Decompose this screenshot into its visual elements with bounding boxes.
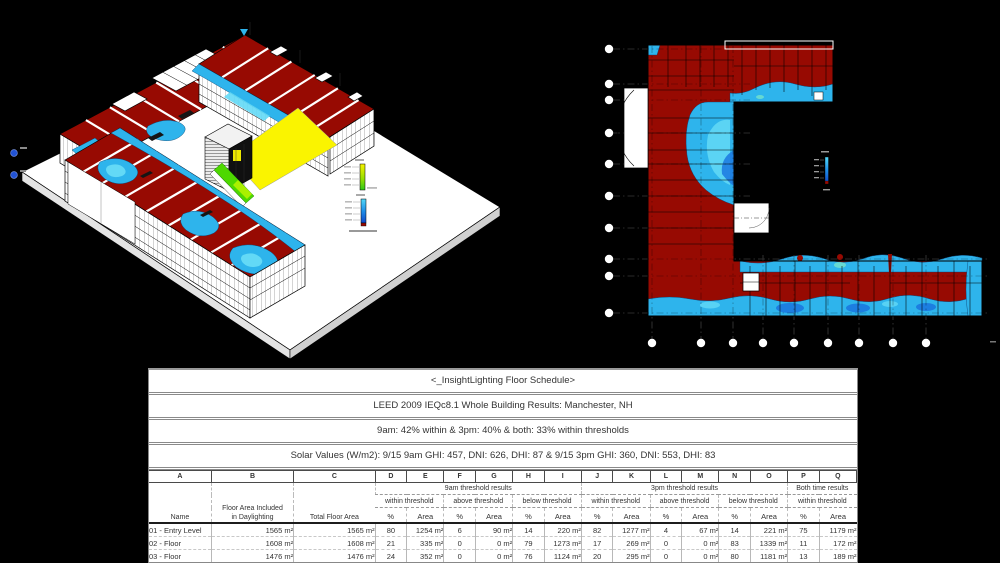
- cell: 1608 m²: [294, 537, 376, 550]
- column-letter: K: [613, 471, 650, 483]
- schedule-title: <_InsightLighting Floor Schedule>: [149, 370, 857, 395]
- header-pct: %: [375, 508, 407, 524]
- schedule-solar-line: Solar Values (W/m2): 9/15 9am GHI: 457, …: [149, 445, 857, 470]
- schedule-summary-line: 9am: 42% within & 3pm: 40% & both: 33% w…: [149, 420, 857, 445]
- header-area: Area: [750, 508, 787, 524]
- cell: 1476 m²: [211, 550, 293, 563]
- cell: 83: [719, 537, 751, 550]
- schedule-grid: A B C D E F G H I J K L M N O P Q Name F…: [149, 470, 857, 562]
- cell: 1273 m²: [544, 537, 581, 550]
- cell: 79: [513, 537, 545, 550]
- header-pct: %: [719, 508, 751, 524]
- column-letter: G: [475, 471, 512, 483]
- column-letter-row: A B C D E F G H I J K L M N O P Q: [149, 471, 857, 483]
- group-9am: 9am threshold results: [375, 483, 581, 495]
- cell: 1254 m²: [407, 523, 444, 537]
- cell: 11: [788, 537, 820, 550]
- subheader-within: within threshold: [581, 495, 650, 508]
- cell: 14: [719, 523, 751, 537]
- cell: 76: [513, 550, 545, 563]
- axis-marker-icon: [11, 172, 18, 179]
- subheader-above: above threshold: [650, 495, 719, 508]
- row-name: 01 - Entry Level: [149, 523, 211, 537]
- cell: 0 m²: [475, 550, 512, 563]
- row-name: 03 - Floor: [149, 550, 211, 563]
- cell: 269 m²: [613, 537, 650, 550]
- cell: 17: [581, 537, 613, 550]
- cell: 67 m²: [682, 523, 719, 537]
- column-letter: E: [407, 471, 444, 483]
- group-both: Both time results: [788, 483, 857, 495]
- cell: 13: [788, 550, 820, 563]
- column-letter: M: [682, 471, 719, 483]
- column-letter: O: [750, 471, 787, 483]
- header-total-floor-area: Total Floor Area: [294, 483, 376, 524]
- cell: 4: [650, 523, 682, 537]
- cell: 0: [650, 537, 682, 550]
- cell: 335 m²: [407, 537, 444, 550]
- cell: 1181 m²: [750, 550, 787, 563]
- group-3pm: 3pm threshold results: [581, 483, 787, 495]
- axon-3d-view[interactable]: [0, 0, 600, 370]
- cell: 1476 m²: [294, 550, 376, 563]
- column-letter: C: [294, 471, 376, 483]
- cell: 1277 m²: [613, 523, 650, 537]
- column-letter: N: [719, 471, 751, 483]
- cell: 352 m²: [407, 550, 444, 563]
- cell: 1339 m²: [750, 537, 787, 550]
- cell: 0: [650, 550, 682, 563]
- cell: 0: [444, 550, 476, 563]
- subheader-within: within threshold: [788, 495, 857, 508]
- cell: 1179 m²: [819, 523, 856, 537]
- header-area: Area: [613, 508, 650, 524]
- subheader-below: below threshold: [513, 495, 582, 508]
- floor-schedule-panel: <_InsightLighting Floor Schedule> LEED 2…: [148, 368, 858, 563]
- cell: 189 m²: [819, 550, 856, 563]
- cell: 1608 m²: [211, 537, 293, 550]
- cell: 0 m²: [475, 537, 512, 550]
- cell: 220 m²: [544, 523, 581, 537]
- cell: 0: [444, 537, 476, 550]
- cell: 20: [581, 550, 613, 563]
- cell: 6: [444, 523, 476, 537]
- cell: 75: [788, 523, 820, 537]
- cell: 172 m²: [819, 537, 856, 550]
- axis-marker-icon: [11, 150, 18, 157]
- cell: 24: [375, 550, 407, 563]
- column-letter: A: [149, 471, 211, 483]
- column-letter: B: [211, 471, 293, 483]
- header-area: Area: [407, 508, 444, 524]
- subheader-within: within threshold: [375, 495, 444, 508]
- header-floor-area-included: Floor Area Included in Daylighting: [211, 483, 293, 524]
- column-letter: L: [650, 471, 682, 483]
- header-fai-line1: Floor Area Included: [222, 505, 283, 512]
- table-row: 03 - Floor 1476 m² 1476 m² 24 352 m² 0 0…: [149, 550, 857, 563]
- cell: 1565 m²: [294, 523, 376, 537]
- header-pct: %: [513, 508, 545, 524]
- application-canvas: <_InsightLighting Floor Schedule> LEED 2…: [0, 0, 1000, 557]
- floor-plan-view[interactable]: [590, 0, 1000, 360]
- column-letter: J: [581, 471, 613, 483]
- cell: 295 m²: [613, 550, 650, 563]
- cell: 1565 m²: [211, 523, 293, 537]
- plan-mini-legend: [814, 151, 830, 190]
- cell: 82: [581, 523, 613, 537]
- table-row: 01 - Entry Level 1565 m² 1565 m² 80 1254…: [149, 523, 857, 537]
- header-fai-line2: in Daylighting: [231, 514, 273, 521]
- column-letter: F: [444, 471, 476, 483]
- column-letter: H: [513, 471, 545, 483]
- column-letter: Q: [819, 471, 856, 483]
- cell: 90 m²: [475, 523, 512, 537]
- header-pct: %: [581, 508, 613, 524]
- column-letter: P: [788, 471, 820, 483]
- cell: 1124 m²: [544, 550, 581, 563]
- cell: 80: [719, 550, 751, 563]
- table-row: 02 - Floor 1608 m² 1608 m² 21 335 m² 0 0…: [149, 537, 857, 550]
- column-letter: I: [544, 471, 581, 483]
- header-pct: %: [650, 508, 682, 524]
- cell: 21: [375, 537, 407, 550]
- group-header-row: Name Floor Area Included in Daylighting …: [149, 483, 857, 495]
- subheader-above: above threshold: [444, 495, 513, 508]
- header-area: Area: [819, 508, 856, 524]
- cell: 0 m²: [682, 550, 719, 563]
- cell: 0 m²: [682, 537, 719, 550]
- header-area: Area: [475, 508, 512, 524]
- header-pct: %: [788, 508, 820, 524]
- header-name: Name: [149, 483, 211, 524]
- header-pct: %: [444, 508, 476, 524]
- header-area: Area: [682, 508, 719, 524]
- column-letter: D: [375, 471, 407, 483]
- cell: 14: [513, 523, 545, 537]
- plan-building: [613, 41, 988, 340]
- cell: 221 m²: [750, 523, 787, 537]
- header-area: Area: [544, 508, 581, 524]
- cell: 80: [375, 523, 407, 537]
- schedule-location-line: LEED 2009 IEQc8.1 Whole Building Results…: [149, 395, 857, 420]
- subheader-below: below threshold: [719, 495, 788, 508]
- row-name: 02 - Floor: [149, 537, 211, 550]
